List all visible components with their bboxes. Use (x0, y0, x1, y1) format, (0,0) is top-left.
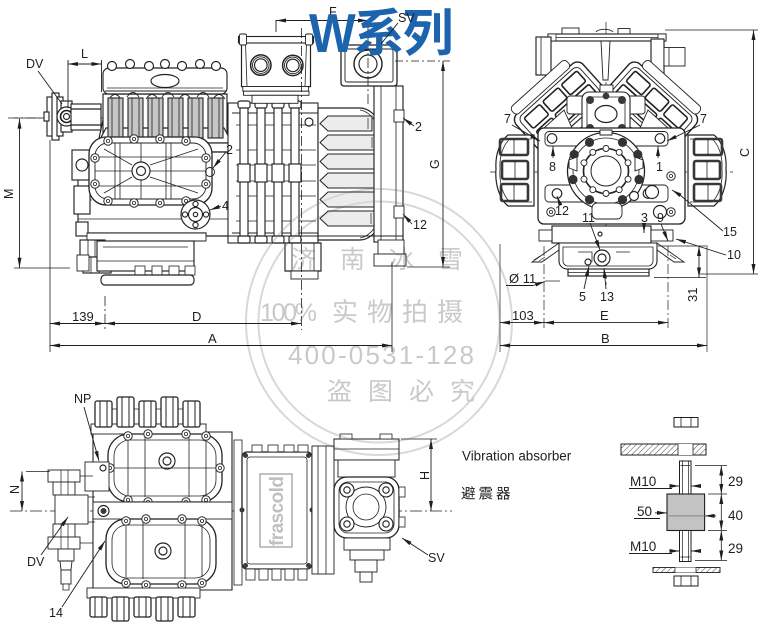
svg-text:G: G (428, 159, 442, 169)
svg-text:frascold: frascold (267, 476, 288, 546)
svg-text:12: 12 (413, 218, 427, 232)
svg-text:M10: M10 (630, 474, 656, 489)
svg-text:D: D (192, 309, 201, 324)
svg-text:C: C (738, 148, 752, 157)
svg-text:2: 2 (415, 120, 422, 134)
svg-text:13: 13 (600, 290, 614, 304)
svg-text:H: H (418, 471, 432, 480)
svg-text:1: 1 (656, 160, 663, 174)
svg-text:Vibration absorber: Vibration absorber (462, 449, 572, 464)
svg-text:139: 139 (72, 309, 94, 324)
svg-text:11: 11 (582, 211, 595, 225)
svg-text:31: 31 (685, 288, 700, 302)
svg-text:3: 3 (641, 211, 648, 225)
svg-text:103: 103 (512, 308, 534, 323)
svg-text:M: M (2, 189, 16, 199)
svg-text:NP: NP (74, 392, 91, 406)
svg-text:5: 5 (579, 290, 586, 304)
svg-text:29: 29 (728, 474, 743, 489)
svg-text:2: 2 (226, 143, 233, 157)
svg-text:14: 14 (49, 606, 63, 620)
svg-text:N: N (8, 485, 22, 494)
svg-text:9: 9 (657, 211, 664, 225)
svg-text:W: W (309, 3, 356, 64)
svg-text:Ø 11: Ø 11 (509, 271, 536, 286)
svg-text:100%: 100% (260, 299, 317, 327)
svg-text:29: 29 (728, 541, 743, 556)
svg-text:40: 40 (728, 508, 743, 523)
svg-text:DV: DV (26, 57, 44, 71)
svg-text:E: E (600, 308, 609, 323)
svg-text:7: 7 (504, 112, 511, 126)
svg-text:A: A (208, 331, 217, 346)
svg-text:7: 7 (700, 112, 707, 126)
svg-text:SV: SV (398, 11, 415, 25)
svg-text:12: 12 (555, 204, 569, 218)
svg-text:B: B (601, 331, 610, 346)
svg-text:M10: M10 (630, 539, 656, 554)
svg-text:SV: SV (428, 551, 445, 565)
svg-text:400-0531-128: 400-0531-128 (288, 340, 474, 370)
svg-text:15: 15 (723, 225, 737, 239)
svg-text:10: 10 (727, 248, 741, 262)
svg-text:DV: DV (27, 555, 45, 569)
svg-text:8: 8 (549, 160, 556, 174)
svg-text:50: 50 (637, 504, 652, 519)
svg-text:4: 4 (222, 199, 229, 213)
svg-text:L: L (81, 47, 88, 61)
